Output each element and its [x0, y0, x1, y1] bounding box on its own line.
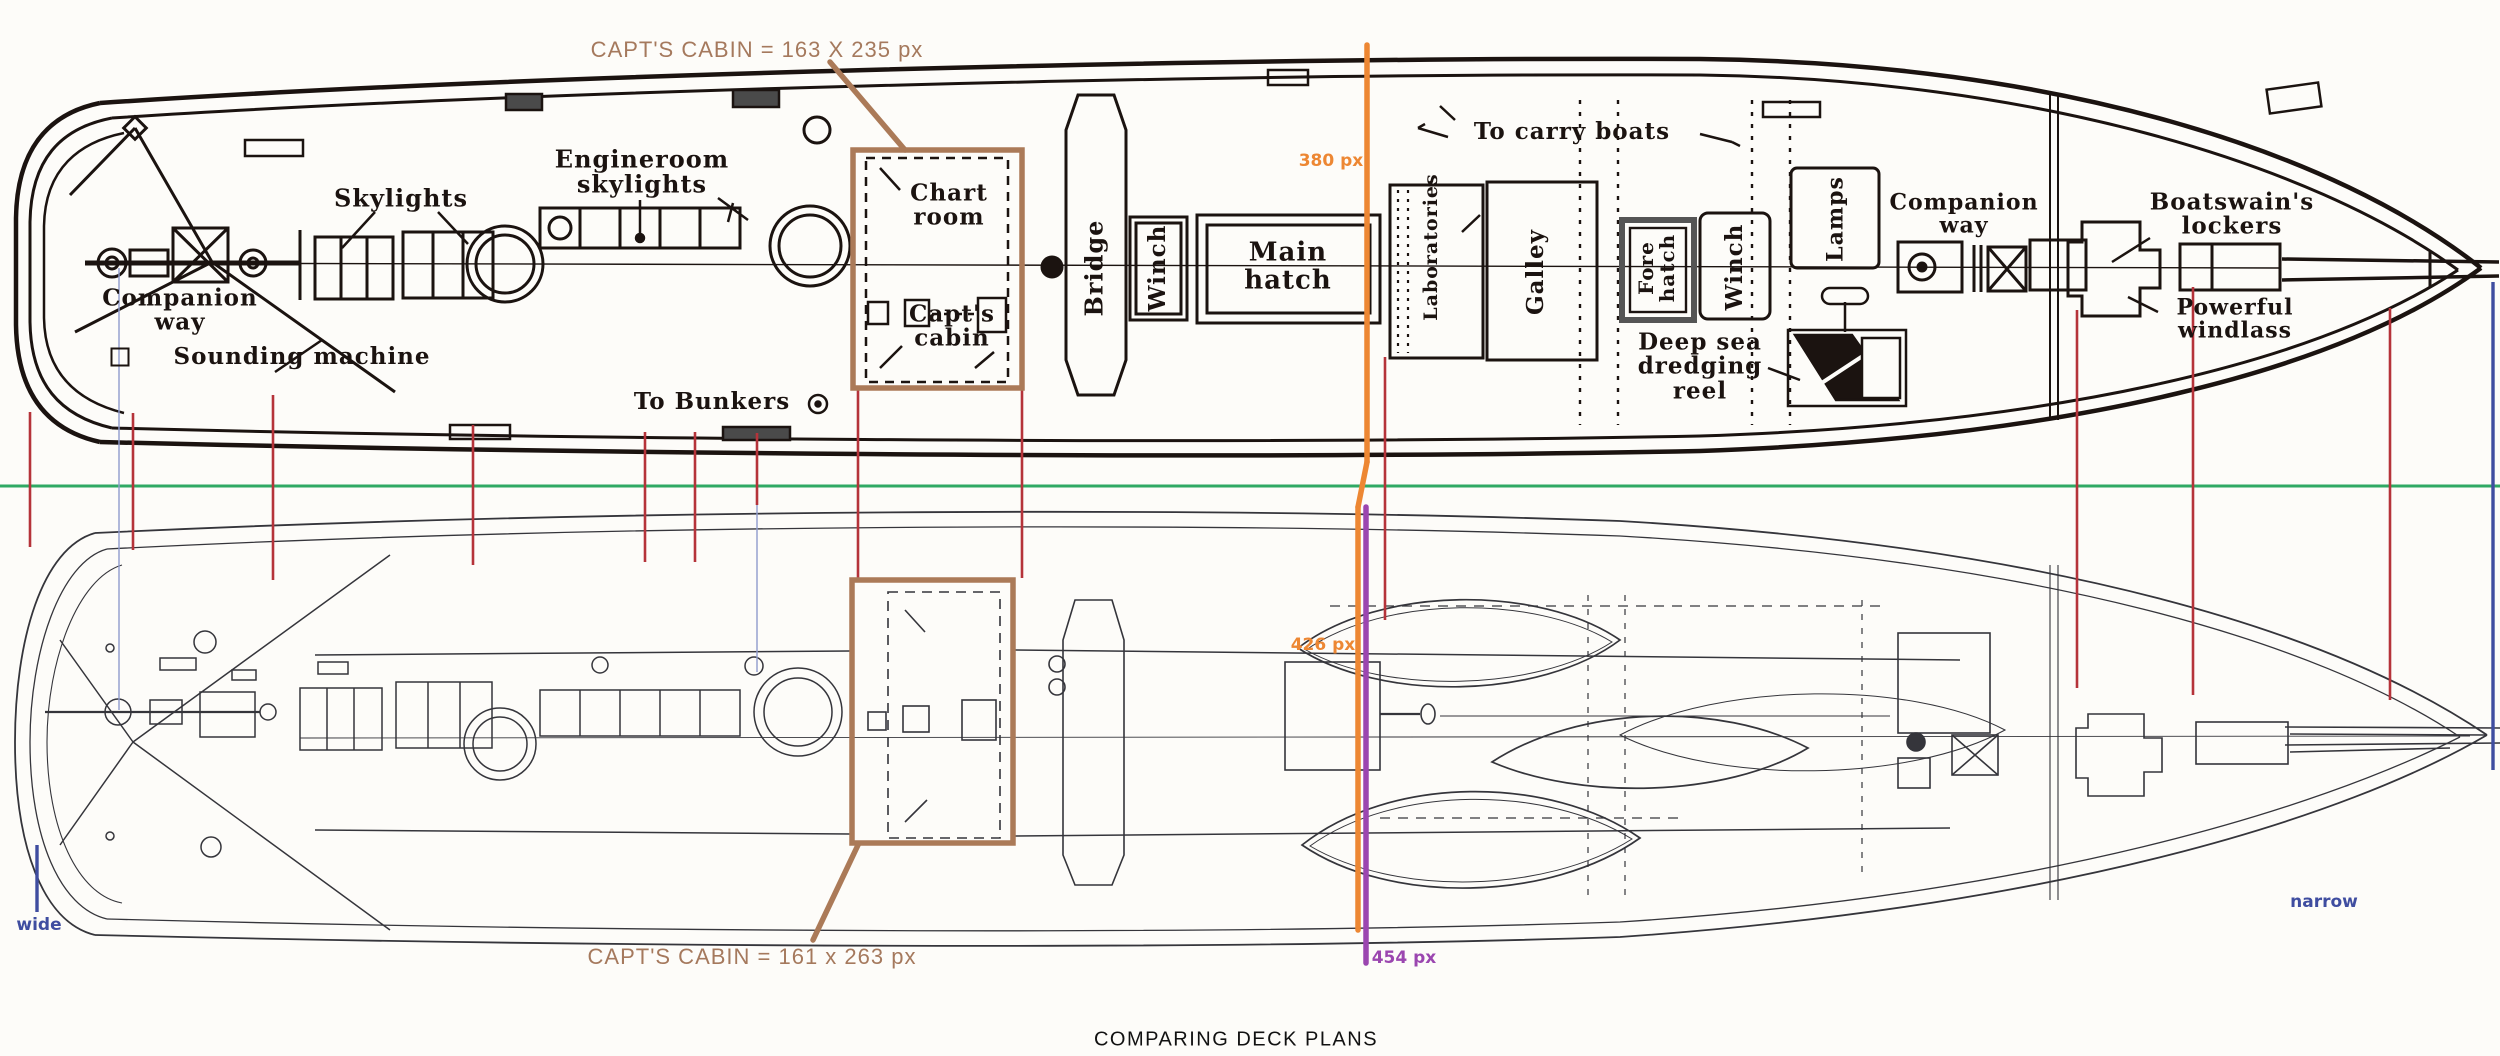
label-laboratories: Laboratories [1421, 173, 1441, 320]
label-sounding-machine: Sounding machine [173, 345, 430, 369]
cabin-leader-line [813, 845, 858, 940]
label-powerful-windlass: Powerful windlass [2177, 297, 2294, 344]
bottom-cabin-measurement: CAPT'S CABIN = 161 x 263 px [588, 944, 917, 970]
bottom-plan-bridge [1049, 600, 1890, 885]
measure-380px: 380 px [1299, 151, 1364, 171]
label-companion-way-right: Companion way [1889, 192, 2038, 239]
label-companion-way-left: Companion way [102, 287, 258, 336]
top-plan-companionway-right [1898, 95, 2086, 420]
bottom-plan-hull [15, 512, 2500, 946]
label-chart-room: Chart room [910, 182, 988, 231]
deck-plan-comparison: Skylights Engineroom skylights Companion… [0, 0, 2500, 1056]
sounding-machine-box [111, 348, 130, 367]
bottom-plan-cabin [868, 592, 1000, 838]
label-fore-hatch: Fore hatch [1636, 234, 1678, 302]
page-caption: COMPARING DECK PLANS [1094, 1029, 1378, 1052]
label-skylights: Skylights [334, 185, 468, 210]
cabin-leader-line [830, 62, 905, 150]
label-bridge: Bridge [1081, 220, 1106, 317]
label-galley: Galley [1524, 229, 1548, 315]
label-winch-1: Winch [1146, 225, 1170, 312]
label-engineroom-skylights: Engineroom skylights [555, 147, 729, 198]
label-to-carry-boats: To carry boats [1474, 120, 1670, 144]
top-cabin-measurement: CAPT'S CABIN = 163 X 235 px [591, 37, 924, 63]
label-to-bunkers: To Bunkers [634, 390, 790, 414]
label-lamps: Lamps [1824, 176, 1847, 262]
label-boatswains-lockers: Boatswain's lockers [2150, 191, 2314, 240]
top-plan-dredging-reel [1788, 288, 1906, 406]
deck-plans-drawing [0, 0, 2500, 1056]
measure-426px: 426 px [1291, 635, 1356, 655]
measure-454px: 454 px [1372, 948, 1437, 968]
bottom-plan-skylights [300, 650, 1960, 836]
wide-label: wide [16, 915, 61, 935]
label-main-hatch: Main hatch [1244, 239, 1332, 294]
label-capts-cabin: Capt's cabin [909, 303, 995, 352]
label-winch-2: Winch [1723, 224, 1747, 311]
narrow-label: narrow [2290, 892, 2358, 912]
bottom-plan-boats [1298, 595, 2005, 900]
bottom-plan-stern-rig [45, 555, 390, 930]
label-deep-sea-dredging-reel: Deep sea dredging reel [1638, 330, 1763, 403]
